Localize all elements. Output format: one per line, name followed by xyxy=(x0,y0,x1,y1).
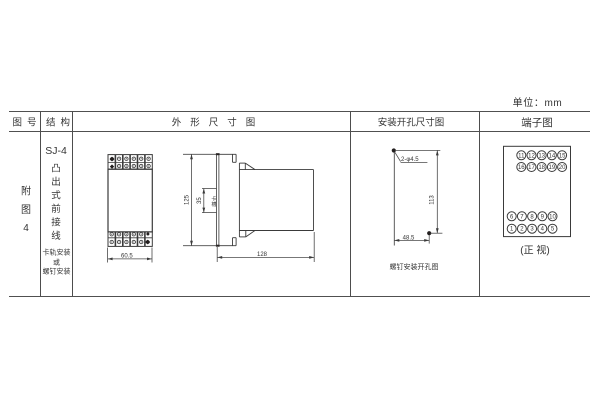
svg-text:线: 线 xyxy=(51,230,61,242)
svg-text:螺钉安装开孔图: 螺钉安装开孔图 xyxy=(390,262,439,271)
svg-text:3: 3 xyxy=(530,227,534,233)
svg-text:安装开孔尺寸图: 安装开孔尺寸图 xyxy=(378,117,445,129)
svg-text:槽: 槽 xyxy=(211,200,216,208)
svg-text:113: 113 xyxy=(430,195,436,205)
svg-text:128: 128 xyxy=(257,252,268,258)
svg-text:18: 18 xyxy=(538,165,545,171)
svg-text:外形尺寸图: 外形尺寸图 xyxy=(172,117,265,129)
svg-text:1: 1 xyxy=(510,227,514,233)
svg-text:15: 15 xyxy=(559,153,566,159)
svg-text:4: 4 xyxy=(541,227,545,233)
svg-text:式: 式 xyxy=(51,190,61,202)
svg-text:2-φ4.5: 2-φ4.5 xyxy=(401,157,419,163)
svg-text:5: 5 xyxy=(551,227,555,233)
svg-text:图: 图 xyxy=(21,204,31,216)
svg-text:12: 12 xyxy=(528,153,535,159)
svg-text:结构: 结构 xyxy=(46,117,75,129)
svg-text:60.5: 60.5 xyxy=(121,254,133,260)
svg-text:SJ-4: SJ-4 xyxy=(45,145,67,157)
svg-text:凸: 凸 xyxy=(51,164,61,175)
svg-text:17: 17 xyxy=(528,165,535,171)
svg-text:10: 10 xyxy=(549,214,556,220)
svg-text:出: 出 xyxy=(51,176,61,188)
svg-text:125: 125 xyxy=(185,194,191,205)
svg-text:或: 或 xyxy=(53,257,60,266)
svg-text:单位：mm: 单位：mm xyxy=(513,96,563,109)
svg-text:14: 14 xyxy=(549,153,556,159)
svg-text:13: 13 xyxy=(538,153,545,159)
svg-text:16: 16 xyxy=(518,165,525,171)
svg-text:图号: 图号 xyxy=(12,118,41,129)
svg-text:前: 前 xyxy=(51,203,61,215)
svg-text:卡轨安装: 卡轨安装 xyxy=(43,248,71,257)
svg-text:4: 4 xyxy=(23,223,29,234)
svg-text:7: 7 xyxy=(520,214,524,220)
svg-text:35: 35 xyxy=(197,197,203,204)
svg-text:2: 2 xyxy=(520,227,524,233)
svg-text:附: 附 xyxy=(21,184,31,197)
svg-text:端子图: 端子图 xyxy=(521,116,553,129)
svg-text:接: 接 xyxy=(51,217,61,229)
svg-text:48.5: 48.5 xyxy=(403,235,415,241)
svg-text:8: 8 xyxy=(530,214,534,220)
svg-text:11: 11 xyxy=(518,153,525,159)
svg-text:(正 视): (正 视) xyxy=(520,244,549,257)
svg-text:9: 9 xyxy=(541,214,545,220)
svg-text:螺钉安装: 螺钉安装 xyxy=(43,267,71,276)
svg-text:19: 19 xyxy=(549,165,556,171)
svg-text:20: 20 xyxy=(559,165,566,171)
svg-text:6: 6 xyxy=(510,214,514,220)
